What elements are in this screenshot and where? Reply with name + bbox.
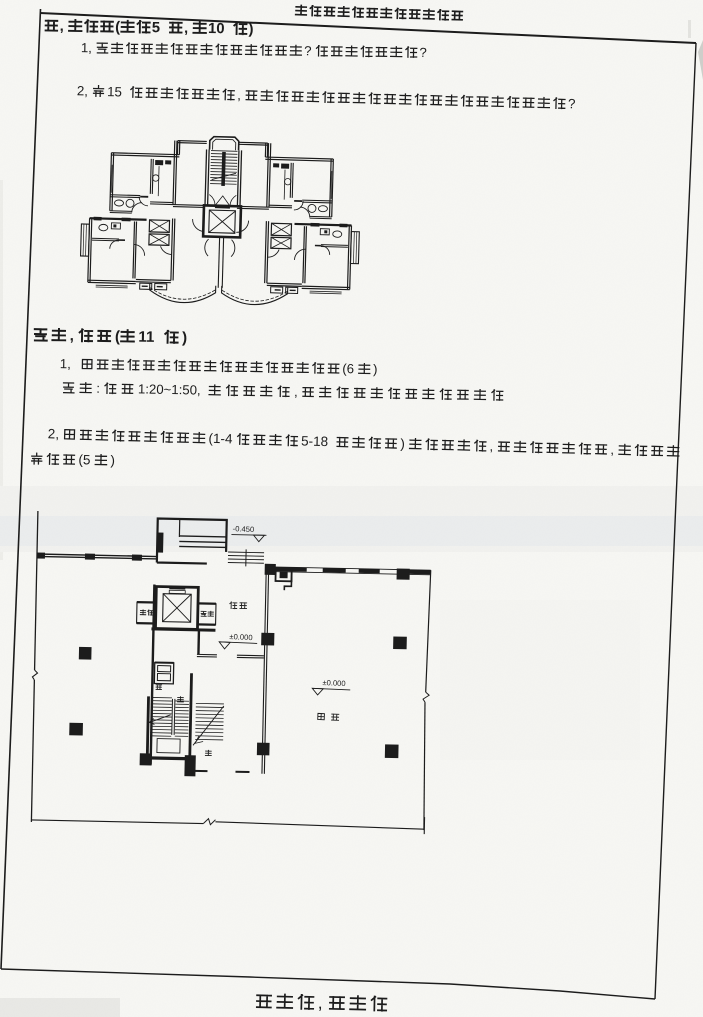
svg-text:2,: 2, — [48, 426, 60, 441]
svg-text:,: , — [237, 88, 241, 103]
svg-text:,: , — [489, 439, 493, 454]
svg-text:1,: 1, — [81, 40, 92, 55]
svg-text:5: 5 — [83, 452, 91, 467]
svg-text:1:20~1:50,: 1:20~1:50, — [138, 381, 201, 397]
svg-text:1,: 1, — [60, 356, 71, 371]
svg-text:): ) — [400, 436, 405, 451]
svg-text:?: ? — [568, 96, 576, 111]
svg-text:±0.000: ±0.000 — [322, 678, 346, 688]
svg-text:,: , — [610, 442, 614, 457]
svg-text:): ) — [110, 453, 115, 468]
svg-text:6: 6 — [347, 361, 355, 376]
svg-text:?: ? — [304, 43, 312, 58]
svg-text:2,: 2, — [77, 83, 89, 98]
svg-text:5-18: 5-18 — [301, 433, 328, 449]
svg-text:?: ? — [419, 45, 427, 60]
svg-text:,: , — [184, 21, 188, 37]
svg-text:,: , — [294, 384, 298, 399]
svg-text:): ) — [248, 22, 253, 38]
svg-text:,: , — [318, 993, 323, 1013]
svg-text:): ) — [182, 329, 187, 346]
svg-text:,: , — [70, 327, 75, 344]
svg-text:,: , — [60, 19, 64, 35]
svg-text:): ) — [373, 362, 378, 377]
svg-text:15: 15 — [107, 84, 122, 99]
svg-text:(: ( — [115, 20, 120, 36]
svg-text:11: 11 — [138, 329, 155, 346]
svg-text::: : — [96, 381, 100, 396]
svg-text:-0.450: -0.450 — [232, 524, 254, 534]
svg-text:1-4: 1-4 — [213, 431, 233, 447]
svg-text:±0.000: ±0.000 — [229, 632, 253, 642]
svg-text:5: 5 — [152, 20, 160, 36]
svg-text:10: 10 — [208, 21, 225, 37]
